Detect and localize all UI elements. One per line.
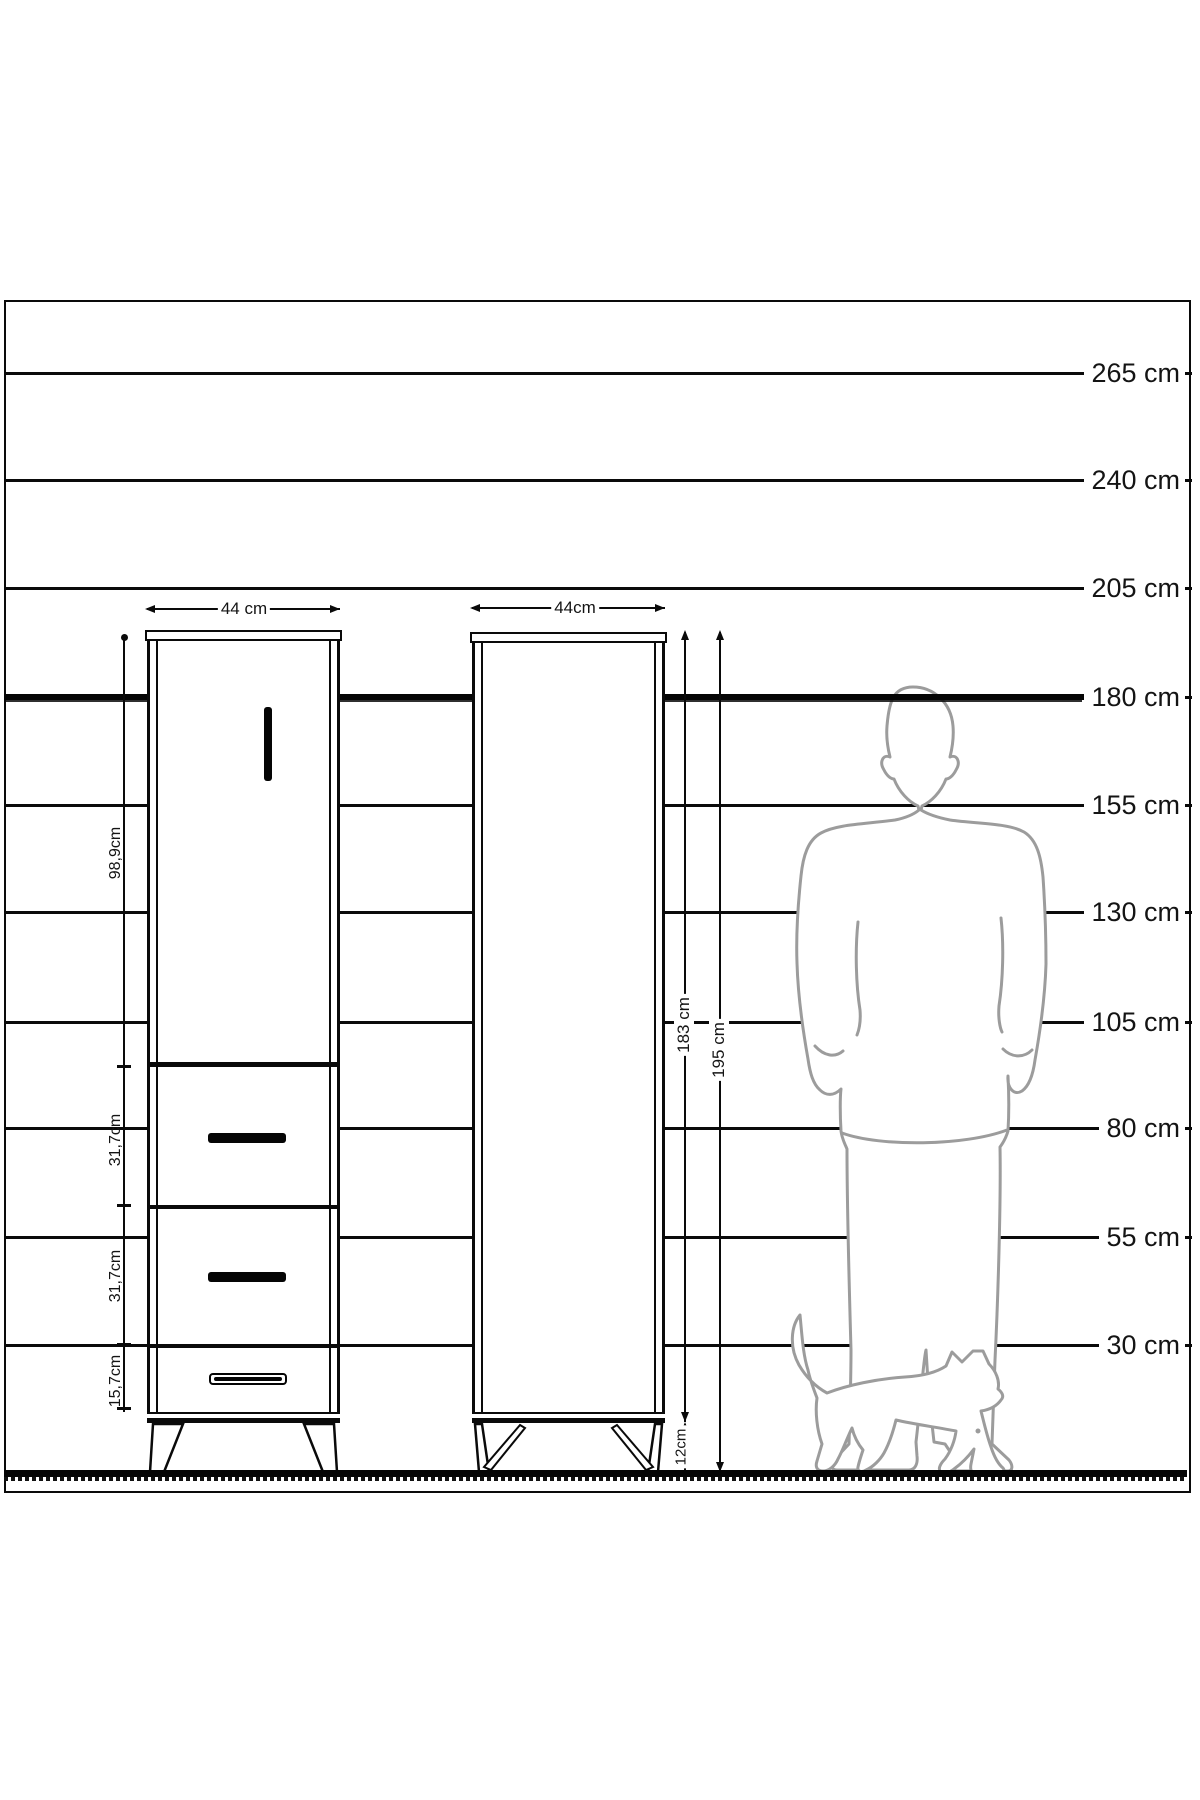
walking-cat-figure	[780, 1300, 1025, 1485]
gridline-end-dash	[1185, 1127, 1192, 1130]
cat-outline	[792, 1315, 1004, 1474]
cat-leg-dot	[976, 1429, 981, 1434]
cabinet-1-right-leg	[304, 1424, 337, 1472]
cabinet-1-drawer-divider-2	[150, 1344, 337, 1348]
gridline-end-dash	[1185, 1344, 1192, 1347]
cabinet-1-drawer-1-handle	[208, 1133, 286, 1143]
gridline-end-dash	[1185, 479, 1192, 482]
cabinet-1	[147, 630, 340, 1473]
height-gridline-240: 240 cm	[4, 465, 1192, 495]
cabinet-2-body	[472, 643, 665, 1412]
cabinet-2	[472, 632, 665, 1473]
cabinet-2-right-edge-line	[654, 643, 656, 1412]
gridline-end-dash	[1185, 1021, 1192, 1024]
gridline-end-dash	[1185, 696, 1192, 699]
cabinet-1-drawer-2-handle	[208, 1272, 286, 1282]
cabinet-2-total-height-label: 195 cm	[709, 1019, 729, 1081]
drawer-1-height-label: 31,7cm	[107, 1111, 125, 1169]
gridline	[4, 479, 1084, 482]
cabinet-2-left-leg-brace	[484, 1425, 525, 1470]
cabinet-1-plinth	[147, 1412, 340, 1423]
height-label: 265 cm	[1084, 358, 1185, 388]
cabinet-1-drawer-3-handle-bar	[214, 1377, 282, 1381]
cabinet-2-legs	[472, 1423, 665, 1473]
cabinet-2-top-panel	[470, 632, 667, 643]
chain-tick	[117, 1343, 131, 1346]
cabinet-1-drawer-3-handle	[209, 1373, 287, 1385]
gridline	[4, 587, 1084, 590]
dim-arrow	[145, 605, 155, 613]
height-label: 180 cm	[1084, 682, 1185, 712]
cabinet-1-right-edge-line	[329, 641, 331, 1412]
gridline-end-dash	[1185, 372, 1192, 375]
drawer-2-height-label: 31,7cm	[107, 1247, 125, 1305]
door-height-label: 98,9cm	[107, 824, 125, 882]
cabinet-2-body-height-label: 183 cm	[674, 994, 694, 1056]
cabinet-1-door-handle	[264, 707, 272, 781]
gridline-end-dash	[1185, 1236, 1192, 1239]
height-gridline-265: 265 cm	[4, 358, 1192, 388]
gridline-end-dash	[1185, 911, 1192, 914]
height-label: 240 cm	[1084, 465, 1185, 495]
cabinet-2-width-label: 44cm	[551, 598, 599, 618]
dimension-diagram: 265 cm 240 cm 205 cm 180 cm 155 cm 130 c…	[0, 0, 1200, 1800]
cabinet-2-plinth	[472, 1412, 665, 1423]
chain-end-dot	[121, 634, 128, 641]
height-label: 155 cm	[1084, 790, 1185, 820]
cabinet-2-left-edge-line	[481, 643, 483, 1412]
cabinet-1-legs	[147, 1423, 340, 1473]
dim-arrow	[681, 630, 689, 640]
gridline-end-dash	[1185, 587, 1192, 590]
dim-arrow	[681, 1412, 689, 1422]
chain-tick	[117, 1204, 131, 1207]
cabinet-1-body	[147, 641, 340, 1412]
gridline	[4, 372, 1084, 375]
dim-arrow	[470, 604, 480, 612]
drawer-3-height-label: 15,7cm	[107, 1352, 125, 1410]
dim-arrow	[330, 605, 340, 613]
dim-arrow	[655, 604, 665, 612]
cabinet-1-drawer-divider-1	[150, 1205, 337, 1209]
cabinet-1-left-leg	[150, 1424, 183, 1472]
gridline-end-dash	[1185, 804, 1192, 807]
height-label: 105 cm	[1084, 1007, 1185, 1037]
cabinet-1-top-panel	[145, 630, 342, 641]
height-label: 205 cm	[1084, 573, 1185, 603]
leg-height-label: 12cm	[673, 1426, 690, 1469]
height-label: 80 cm	[1099, 1113, 1185, 1143]
height-label: 55 cm	[1099, 1222, 1185, 1252]
floor-line	[4, 1470, 1187, 1477]
cabinet-1-door-drawer-divider	[150, 1062, 337, 1067]
cabinet-2-right-leg-brace	[612, 1425, 653, 1470]
height-label: 30 cm	[1099, 1330, 1185, 1360]
chain-tick	[117, 1065, 131, 1068]
cabinet-1-left-edge-line	[156, 641, 158, 1412]
cabinet-1-width-label: 44 cm	[218, 599, 270, 619]
dim-arrow	[716, 630, 724, 640]
height-label: 130 cm	[1084, 897, 1185, 927]
